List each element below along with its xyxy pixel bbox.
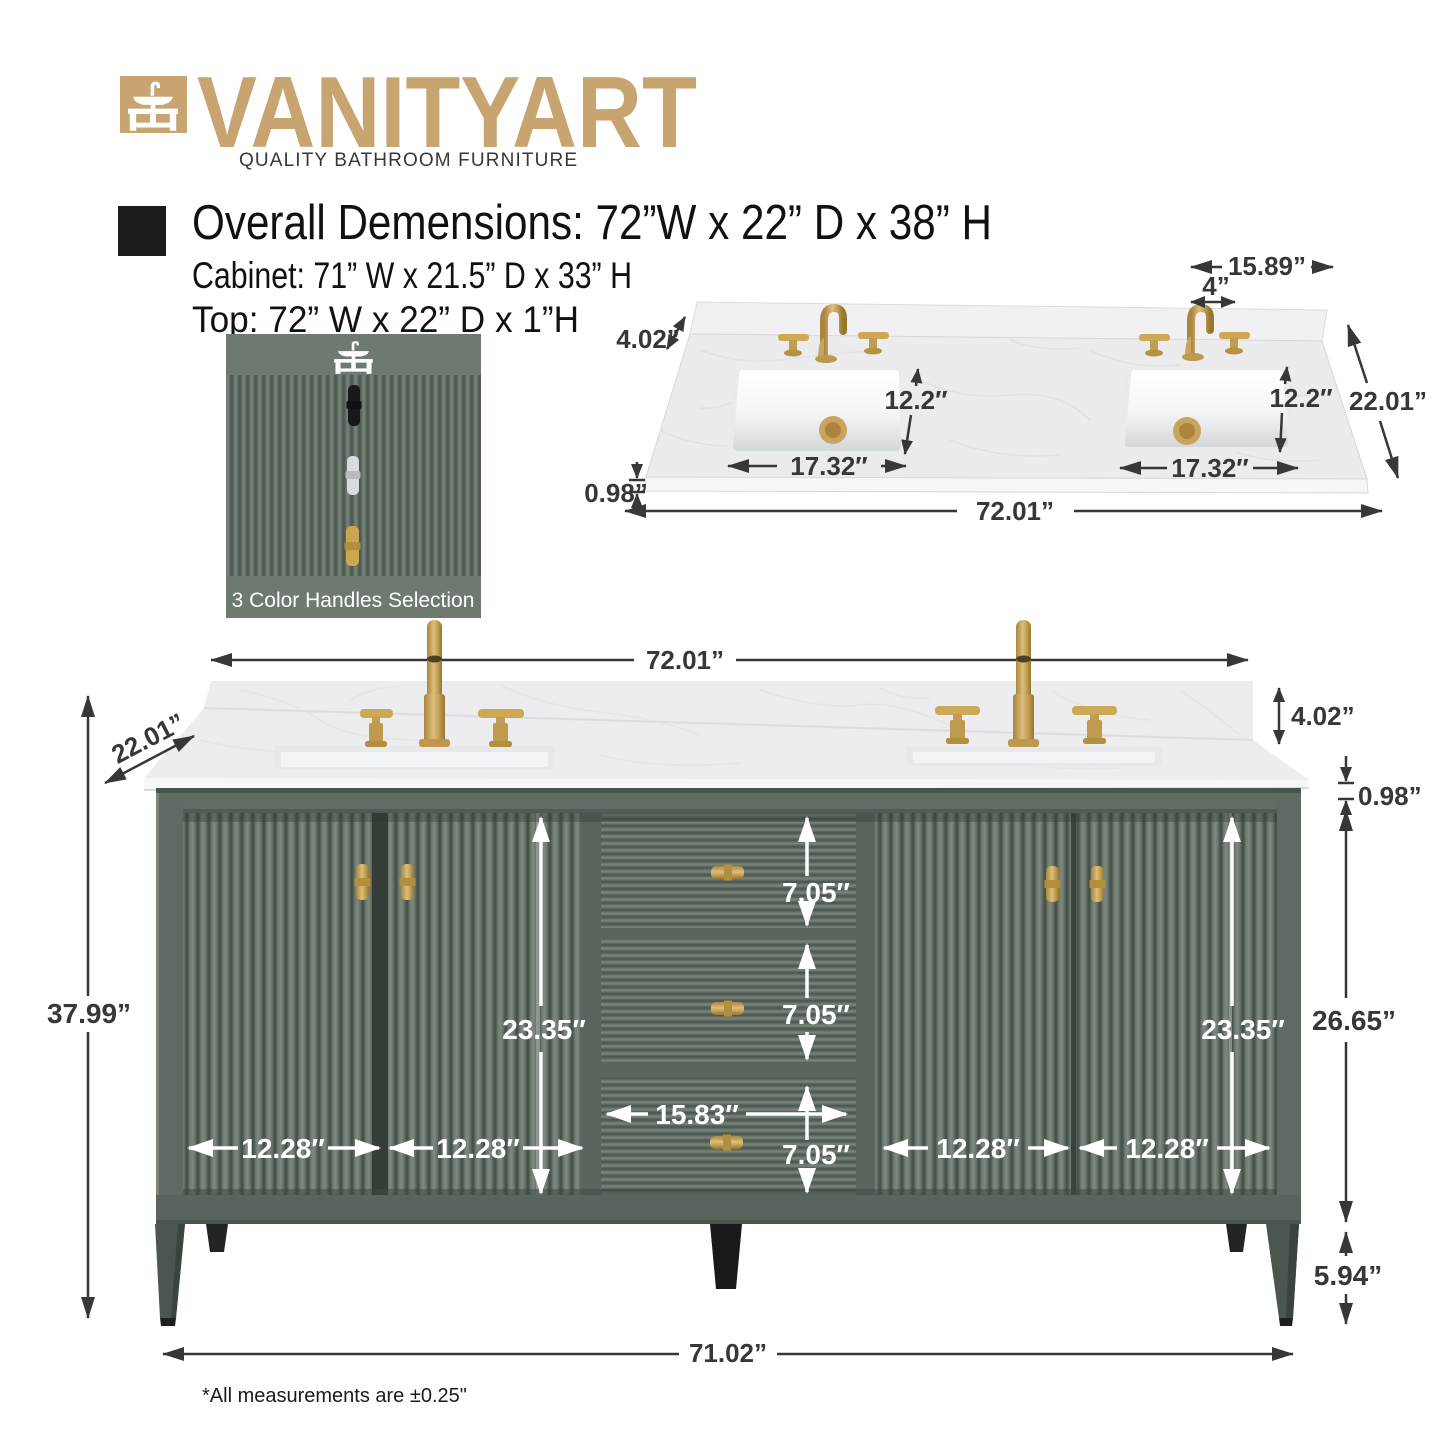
svg-text:0.98”: 0.98” <box>1358 781 1422 811</box>
svg-text:71.02”: 71.02” <box>689 1338 767 1368</box>
svg-text:QUALITY BATHROOM FURNITURE: QUALITY BATHROOM FURNITURE <box>239 150 579 171</box>
svg-text:12.28″: 12.28″ <box>241 1133 324 1164</box>
svg-text:72.01”: 72.01” <box>976 496 1054 526</box>
svg-text:7.05″: 7.05″ <box>782 1139 850 1170</box>
svg-text:17.32″: 17.32″ <box>790 451 868 481</box>
svg-text:26.65”: 26.65” <box>1312 1005 1396 1036</box>
svg-text:23.35″: 23.35″ <box>502 1014 585 1045</box>
svg-text:15.83″: 15.83″ <box>655 1099 738 1130</box>
svg-text:23.35″: 23.35″ <box>1201 1014 1284 1045</box>
svg-text:7.05″: 7.05″ <box>782 877 850 908</box>
svg-text:Cabinet: 71” W x 21.5” D x 33”: Cabinet: 71” W x 21.5” D x 33” H <box>192 255 632 296</box>
svg-text:37.99”: 37.99” <box>47 998 131 1029</box>
svg-text:4.02”: 4.02” <box>616 324 680 354</box>
svg-text:12.28″: 12.28″ <box>936 1133 1019 1164</box>
svg-text:7.05″: 7.05″ <box>782 999 850 1030</box>
svg-text:17.32″: 17.32″ <box>1171 453 1249 483</box>
svg-text:12.2″: 12.2″ <box>884 385 947 415</box>
svg-text:*All measurements are ±0.25": *All measurements are ±0.25" <box>202 1385 467 1407</box>
svg-text:4.02”: 4.02” <box>1291 701 1355 731</box>
svg-text:12.28″: 12.28″ <box>1125 1133 1208 1164</box>
svg-text:5.94”: 5.94” <box>1314 1260 1383 1291</box>
svg-text:72.01”: 72.01” <box>646 645 724 675</box>
svg-text:12.28″: 12.28″ <box>436 1133 519 1164</box>
svg-text:22.01”: 22.01” <box>1349 386 1427 416</box>
svg-text:12.2″: 12.2″ <box>1269 383 1332 413</box>
svg-text:15.89”: 15.89” <box>1228 251 1306 281</box>
svg-text:0.98”: 0.98” <box>584 478 648 508</box>
svg-text:Top: 72” W x 22” D x 1”H: Top: 72” W x 22” D x 1”H <box>192 299 579 340</box>
svg-text:Overall Demensions: 72”W x 22”: Overall Demensions: 72”W x 22” D x 38” H <box>192 196 992 250</box>
svg-text:3 Color Handles Selection: 3 Color Handles Selection <box>232 589 475 612</box>
svg-text:4”: 4” <box>1202 271 1229 301</box>
